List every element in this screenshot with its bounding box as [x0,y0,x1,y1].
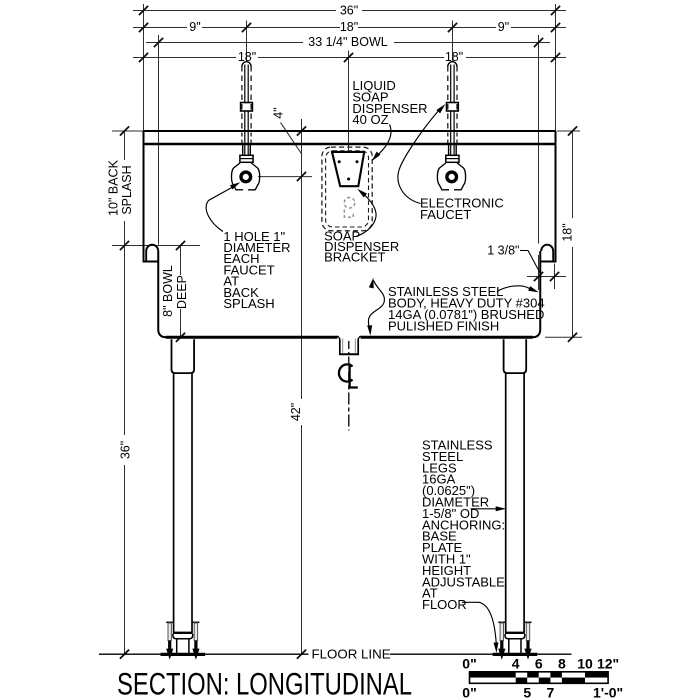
svg-text:FLOOR: FLOOR [422,597,467,612]
svg-text:36": 36" [340,3,358,17]
svg-text:SECTION: LONGITUDINAL: SECTION: LONGITUDINAL [117,666,412,700]
svg-text:9": 9" [498,20,509,34]
svg-text:0": 0" [462,656,476,672]
svg-text:42": 42" [289,403,303,421]
svg-text:36": 36" [119,441,133,459]
svg-text:4: 4 [512,656,520,672]
svg-text:10: 10 [577,656,593,672]
svg-text:40 OZ: 40 OZ [352,112,388,127]
svg-text:1'-0": 1'-0" [593,684,623,700]
svg-text:8: 8 [558,656,566,672]
svg-text:7: 7 [546,684,554,700]
svg-text:4": 4" [272,107,286,118]
svg-text:33 1/4" BOWL: 33 1/4" BOWL [308,35,388,49]
svg-text:0": 0" [462,684,476,700]
svg-text:9": 9" [189,20,200,34]
svg-text:18": 18" [340,20,358,34]
svg-text:FAUCET: FAUCET [420,207,471,222]
svg-text:SPLASH: SPLASH [223,296,274,311]
svg-text:8" BOWL: 8" BOWL [161,265,175,317]
svg-text:6: 6 [535,656,543,672]
svg-text:1 3/8": 1 3/8" [487,244,519,258]
svg-text:12": 12" [597,656,619,672]
svg-text:BRACKET: BRACKET [324,250,385,265]
svg-text:FLOOR LINE: FLOOR LINE [312,646,391,661]
svg-text:PULISHED FINISH: PULISHED FINISH [388,319,499,334]
svg-text:18": 18" [561,223,575,241]
svg-text:SPLASH: SPLASH [120,165,134,214]
svg-text:10" BACK: 10" BACK [107,159,121,216]
svg-text:DEEP: DEEP [175,275,189,309]
svg-text:5: 5 [523,684,531,700]
